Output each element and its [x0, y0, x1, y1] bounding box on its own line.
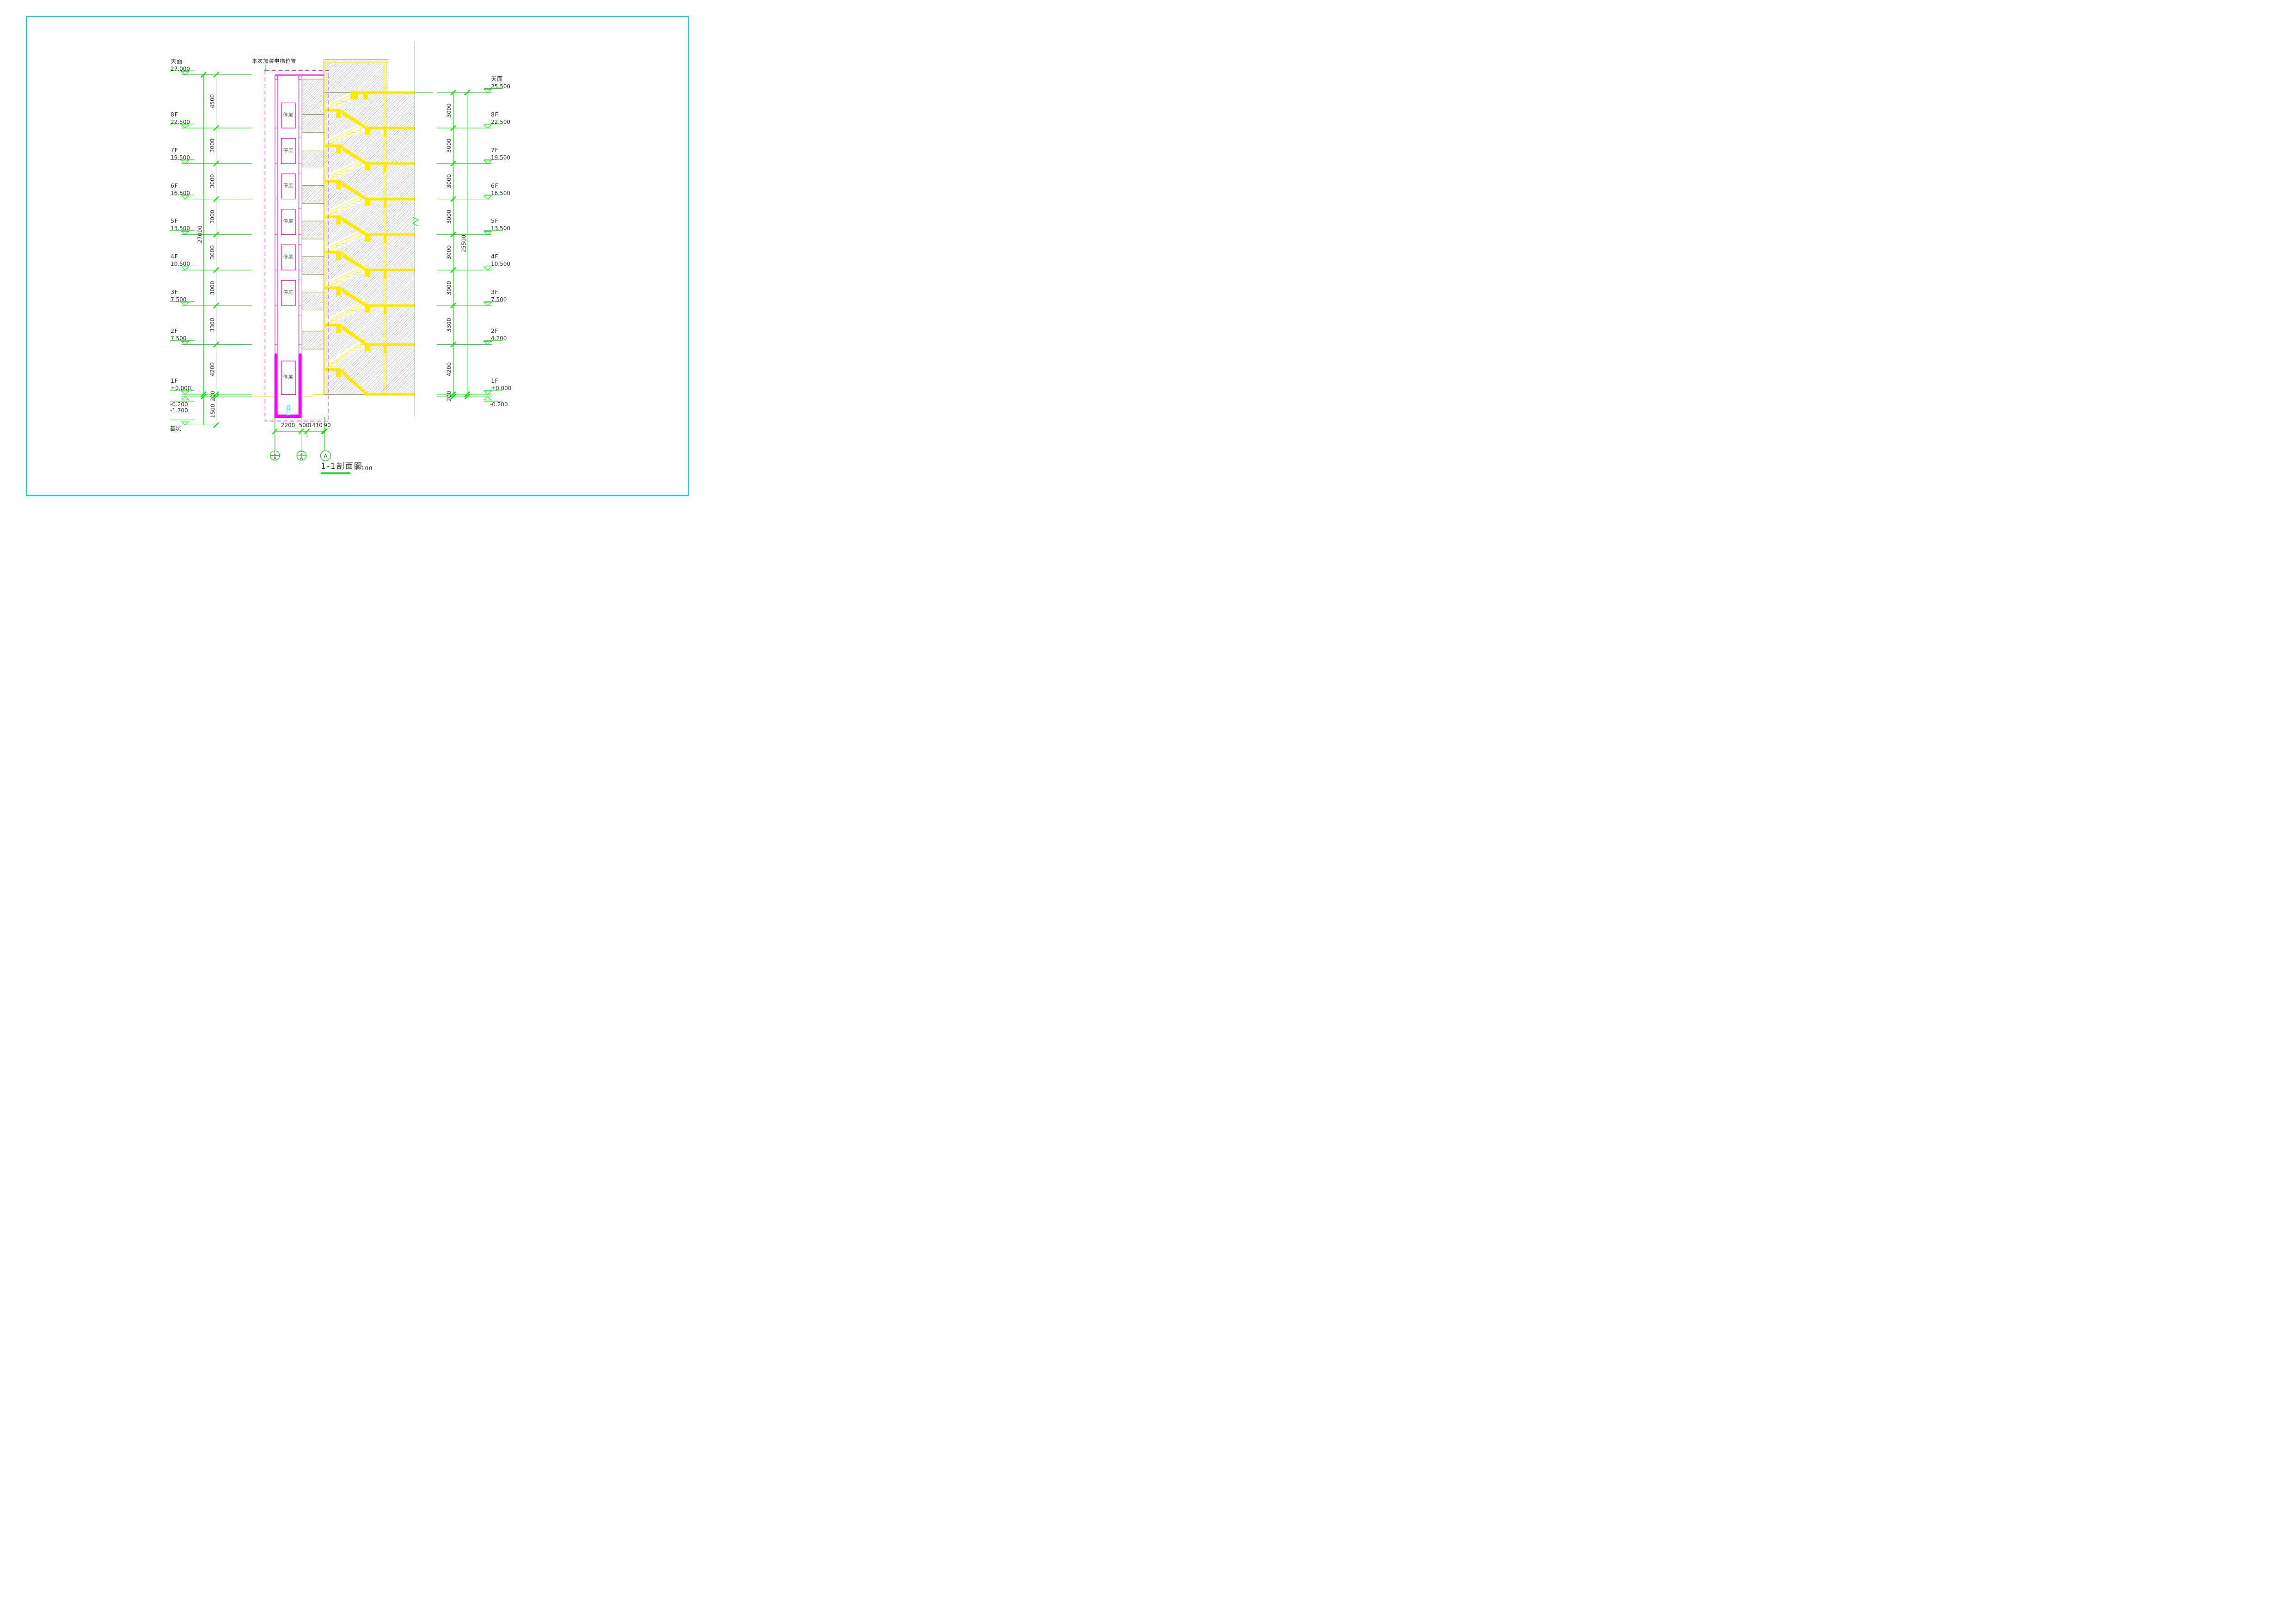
right-level-label: 8F — [491, 111, 498, 117]
right-level-elevation: 25.500 — [491, 84, 510, 90]
left-level-elevation: 19.500 — [171, 155, 190, 161]
left-storey-dim: 3300 — [209, 318, 215, 332]
left-level-elevation: 13.500 — [171, 226, 190, 232]
right-storey-dim: 3000 — [446, 245, 452, 260]
right-level-elevation: 16.500 — [491, 190, 510, 196]
left-dim-1500: 1500 — [210, 404, 216, 418]
left-level-label: 6F — [171, 183, 178, 189]
right-level-elevation: 19.500 — [491, 155, 510, 161]
right-level-label: 4F — [491, 253, 498, 259]
left-level-elevation: 16.500 — [171, 190, 190, 196]
right-level-minus0200: -0.200 — [490, 402, 508, 408]
left-level-label: 1F — [171, 378, 178, 384]
left-level-elevation: 27.000 — [171, 66, 190, 72]
right-storey-dim: 3000 — [446, 139, 452, 153]
left-level-elevation: 22.500 — [171, 119, 190, 125]
dim-90: 90 — [324, 422, 331, 428]
right-storey-dim: 3000 — [446, 174, 452, 189]
right-level-elevation: 13.500 — [491, 226, 510, 232]
left-level-label: 8F — [171, 111, 178, 117]
dim-2200: 2200 — [281, 422, 295, 428]
left-level-label: 天面 — [171, 58, 183, 64]
elevator-stop-label: 停层 — [281, 375, 295, 380]
left-overall-dim: 27000 — [197, 226, 203, 243]
annotation-new-elevator-location: 本次加装电梯位置 — [252, 58, 296, 64]
grid-bubble-1-bot: A — [273, 456, 276, 461]
left-storey-dim: 4500 — [209, 94, 215, 109]
elevator-stop-label: 停层 — [281, 184, 295, 190]
right-overall-dim: 25500 — [461, 235, 467, 252]
left-level-elevation: 7.500 — [171, 297, 186, 303]
left-level-label: 2F — [171, 328, 178, 334]
left-level-minus1700: -1.700 — [170, 408, 188, 414]
right-storey-dim: 3000 — [446, 210, 452, 224]
section-title-scale: 1:100 — [355, 465, 373, 471]
elevator-stop-label: 停层 — [281, 219, 295, 225]
dim-1410: 1410 — [308, 422, 323, 428]
drawing-sheet: 本次加装电梯位置 27000 200 1500 -0.200 -1.700 基坑… — [0, 0, 714, 505]
left-level-elevation: 10.500 — [171, 261, 190, 267]
left-storey-dim: 3000 — [209, 281, 215, 295]
grid-bubble-2-top: 2 — [300, 451, 303, 456]
right-level-elevation: 22.500 — [491, 119, 510, 125]
left-level-minus0200: -0.200 — [170, 402, 188, 408]
right-storey-dim: 3000 — [446, 281, 452, 295]
left-level-elevation: ±0.000 — [171, 386, 191, 392]
right-level-elevation: ±0.000 — [491, 386, 511, 392]
left-dim-200: 200 — [210, 391, 216, 402]
elevator-stop-label: 停层 — [281, 148, 295, 154]
elevator-stop-label: 停层 — [281, 255, 295, 260]
right-level-elevation: 7.500 — [491, 297, 507, 303]
right-level-elevation: 4.200 — [491, 336, 507, 342]
section-title-underline — [321, 472, 350, 475]
left-level-label: 3F — [171, 289, 178, 295]
left-pit-label: 基坑 — [170, 426, 181, 432]
elevator-stop-label: 停层 — [281, 290, 295, 296]
right-level-label: 1F — [491, 378, 498, 384]
left-storey-dim: 3000 — [209, 245, 215, 260]
left-level-label: 5F — [171, 218, 178, 224]
grid-bubble-1-top: 1 — [274, 451, 276, 456]
right-level-label: 7F — [491, 147, 498, 153]
dim-500: 500 — [299, 422, 310, 428]
right-level-label: 天面 — [491, 76, 503, 82]
grid-bubble-A: A — [324, 453, 328, 459]
right-level-elevation: 10.500 — [491, 261, 510, 267]
right-level-label: 6F — [491, 183, 498, 189]
right-storey-dim: 3300 — [446, 318, 452, 332]
right-storey-dim: 3000 — [446, 103, 452, 117]
right-storey-dim: 4200 — [446, 362, 452, 377]
right-level-label: 3F — [491, 289, 498, 295]
grid-bubble-2-bot: A — [300, 456, 303, 461]
left-level-label: 7F — [171, 147, 178, 153]
right-dim-200: 200 — [446, 391, 452, 401]
right-level-label: 5F — [491, 218, 498, 224]
left-storey-dim: 3000 — [209, 210, 215, 224]
left-storey-dim: 3000 — [209, 174, 215, 189]
left-level-label: 4F — [171, 253, 178, 259]
left-storey-dim: 4200 — [209, 362, 215, 377]
right-level-label: 2F — [491, 328, 498, 334]
section-drawing-vector-layer — [0, 0, 714, 505]
elevator-stop-label: 停层 — [281, 113, 295, 118]
left-storey-dim: 3000 — [209, 139, 215, 153]
left-level-elevation: 7.500 — [171, 336, 186, 342]
